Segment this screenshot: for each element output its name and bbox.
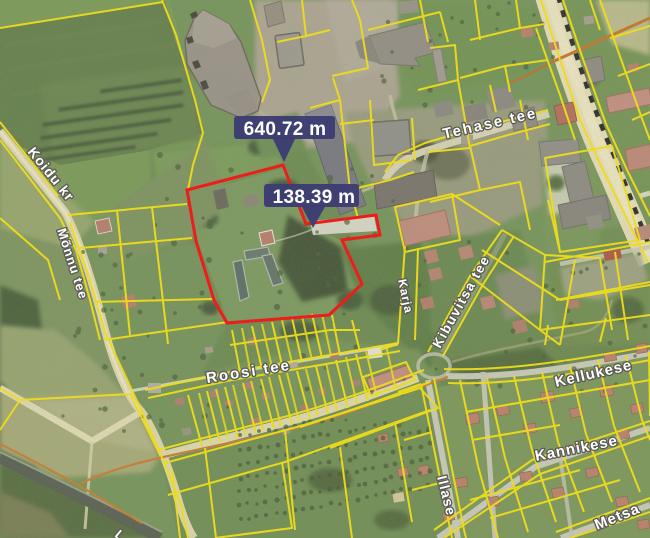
svg-text:640.72 m: 640.72 m — [244, 119, 327, 140]
svg-text:138.39 m: 138.39 m — [273, 187, 356, 208]
